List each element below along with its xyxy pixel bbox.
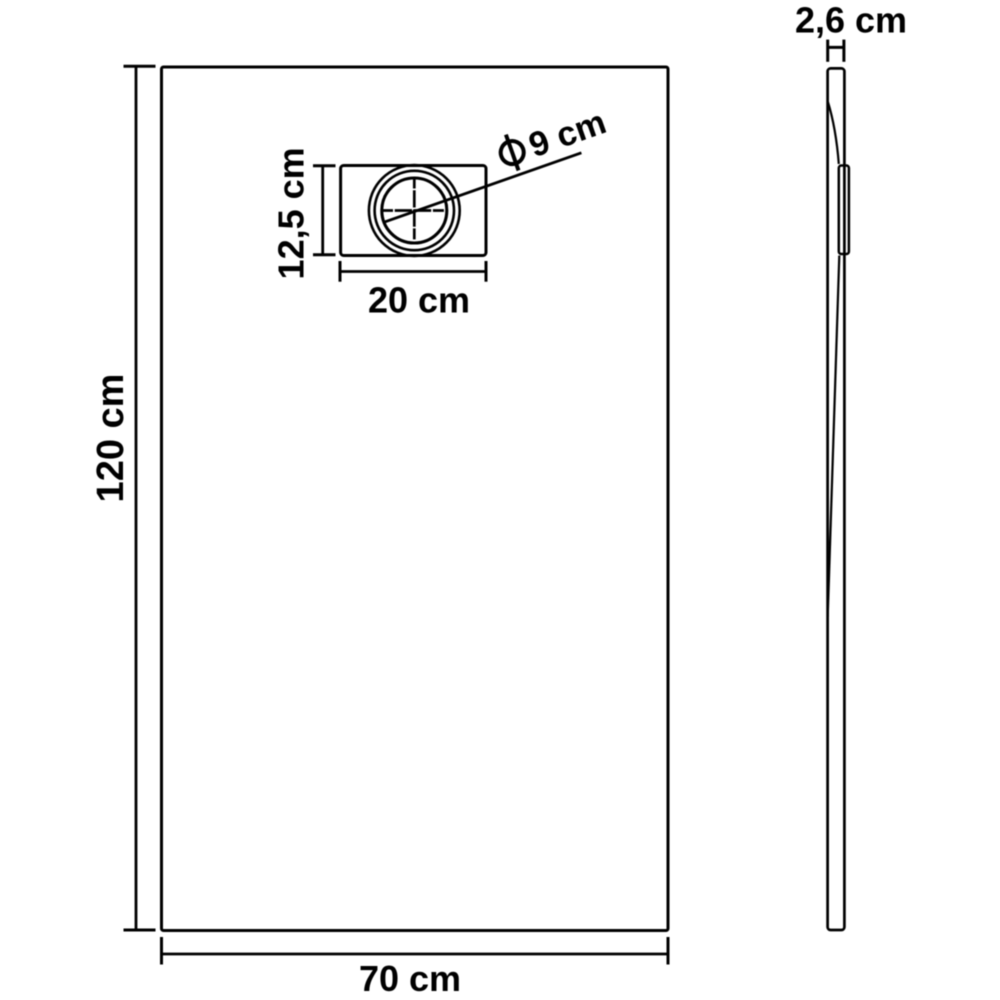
svg-text:20 cm: 20 cm [368, 280, 470, 321]
svg-text:12,5 cm: 12,5 cm [271, 147, 312, 279]
svg-text:120 cm: 120 cm [90, 374, 132, 503]
svg-text:70 cm: 70 cm [359, 958, 461, 999]
svg-text:2,6 cm: 2,6 cm [795, 0, 907, 41]
